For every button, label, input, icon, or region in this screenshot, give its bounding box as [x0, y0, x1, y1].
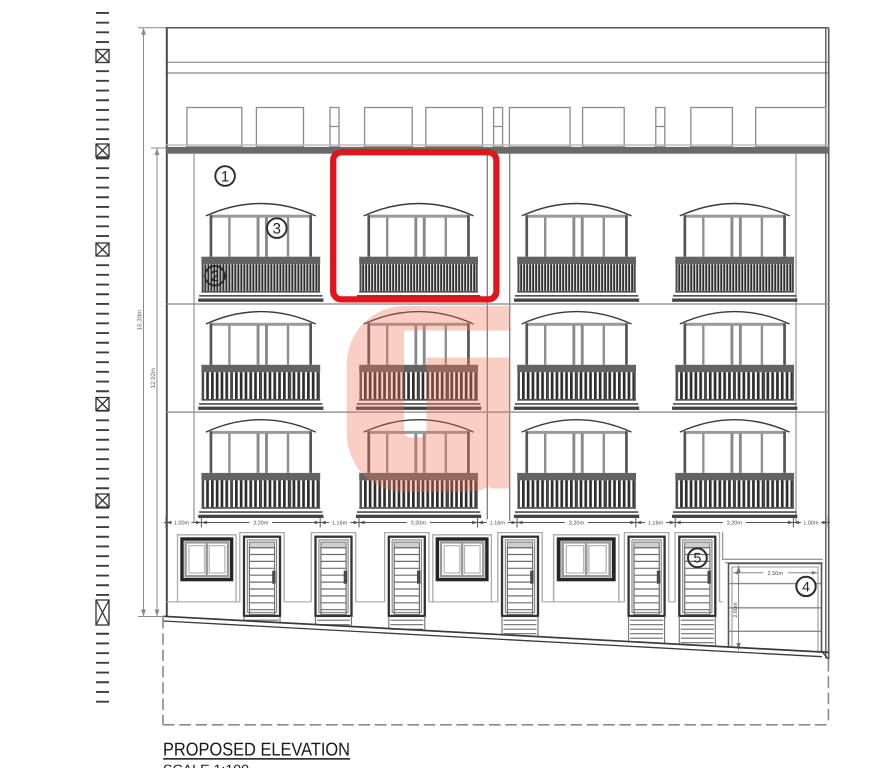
svg-text:16.30m: 16.30m [137, 310, 144, 331]
svg-text:1.16m: 1.16m [490, 521, 506, 527]
svg-text:2.60m: 2.60m [733, 602, 739, 618]
svg-text:1.16m: 1.16m [648, 521, 664, 527]
svg-text:SCALE 1:100: SCALE 1:100 [163, 762, 249, 768]
svg-text:4: 4 [802, 578, 810, 594]
svg-text:3.20m: 3.20m [569, 521, 585, 527]
svg-text:12.92m: 12.92m [150, 368, 157, 389]
svg-text:3.20m: 3.20m [411, 521, 427, 527]
svg-text:1.00m: 1.00m [803, 521, 819, 527]
svg-text:PROPOSED ELEVATION: PROPOSED ELEVATION [163, 739, 350, 760]
svg-text:1.00m: 1.00m [174, 521, 190, 527]
svg-text:3: 3 [273, 220, 281, 237]
svg-text:2: 2 [211, 268, 219, 285]
svg-text:3.20m: 3.20m [253, 521, 269, 527]
svg-text:1.16m: 1.16m [332, 521, 348, 527]
svg-text:5: 5 [694, 550, 702, 566]
svg-text:1: 1 [221, 168, 229, 185]
svg-text:3.20m: 3.20m [727, 521, 743, 527]
svg-text:2.50m: 2.50m [768, 571, 784, 577]
